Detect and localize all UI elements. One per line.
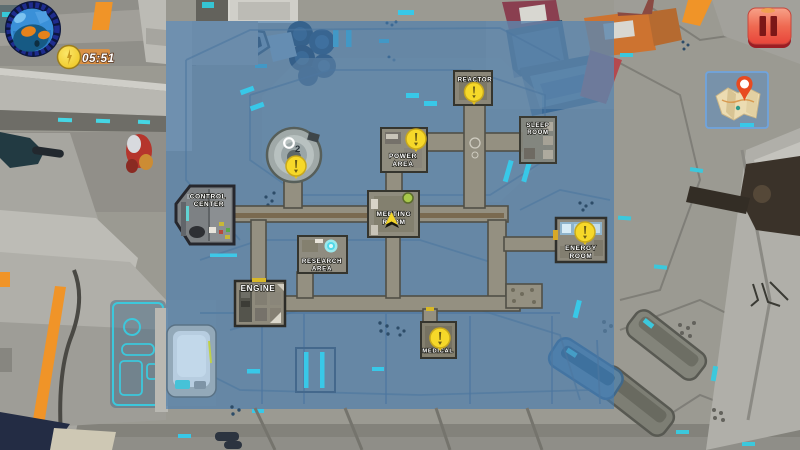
svg-text:05:51: 05:51: [82, 51, 115, 65]
svg-text:CENTER: CENTER: [194, 201, 224, 208]
svg-text:AREA: AREA: [312, 266, 332, 273]
svg-text:ROOM: ROOM: [527, 130, 548, 136]
svg-text:SLEEP: SLEEP: [526, 123, 549, 129]
svg-text:ENERGY: ENERGY: [565, 245, 597, 252]
svg-text:CONTROL: CONTROL: [190, 194, 227, 201]
svg-text:POWER: POWER: [389, 153, 417, 160]
svg-text:AREA: AREA: [392, 161, 413, 168]
svg-text:MEDICAL: MEDICAL: [422, 349, 453, 355]
svg-text:RESEARCH: RESEARCH: [302, 258, 342, 265]
svg-text:ENGINE: ENGINE: [241, 284, 276, 293]
svg-text:2: 2: [295, 144, 300, 155]
svg-text:ROOM: ROOM: [569, 253, 592, 260]
svg-text:MEETING: MEETING: [377, 211, 412, 218]
